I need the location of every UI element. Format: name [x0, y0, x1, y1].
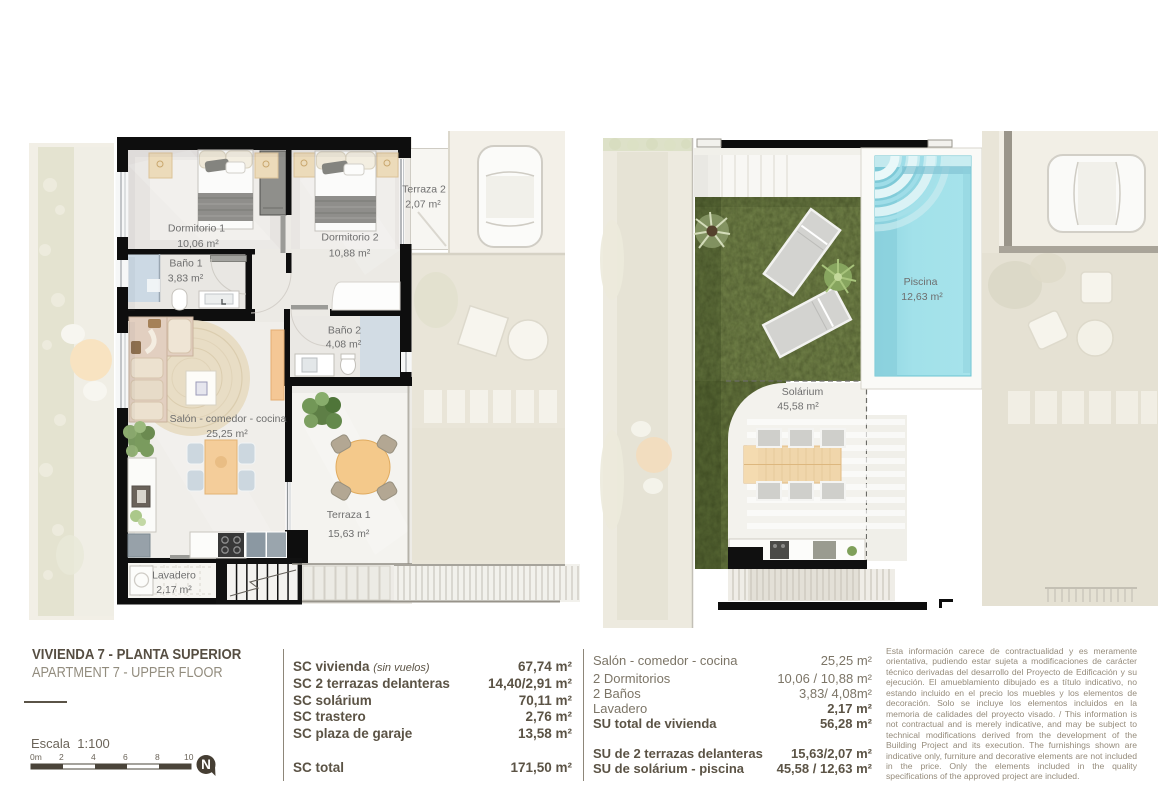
svg-text:8: 8: [155, 752, 160, 762]
svg-text:12,63 m²: 12,63 m²: [901, 291, 943, 303]
svg-text:3,83 m²: 3,83 m²: [168, 273, 204, 285]
svg-text:25,25 m²: 25,25 m²: [206, 428, 248, 440]
svg-text:Terraza 1: Terraza 1: [327, 509, 371, 521]
svg-text:Terraza 2: Terraza 2: [402, 183, 446, 195]
svg-text:2,07 m²: 2,07 m²: [405, 199, 441, 211]
svg-text:6: 6: [123, 752, 128, 762]
svg-text:45,58 m²: 45,58 m²: [777, 401, 819, 413]
svg-text:4,08 m²: 4,08 m²: [326, 339, 362, 351]
svg-text:Dormitorio 1: Dormitorio 1: [168, 223, 225, 235]
svg-text:15,63 m²: 15,63 m²: [328, 528, 370, 540]
svg-text:Baño 1: Baño 1: [169, 258, 202, 270]
svg-text:0m: 0m: [30, 752, 42, 762]
svg-text:10,88 m²: 10,88 m²: [329, 248, 371, 260]
svg-text:Dormitorio 2: Dormitorio 2: [321, 232, 378, 244]
svg-text:10,06 m²: 10,06 m²: [177, 238, 219, 250]
svg-text:2,17 m²: 2,17 m²: [156, 584, 192, 596]
svg-text:Lavadero: Lavadero: [152, 570, 196, 582]
svg-text:Solárium: Solárium: [782, 386, 824, 398]
svg-text:Baño 2: Baño 2: [328, 325, 361, 337]
svg-text:2: 2: [59, 752, 64, 762]
svg-text:Piscina: Piscina: [904, 276, 938, 288]
svg-text:Salón - comedor - cocina: Salón - comedor - cocina: [170, 413, 287, 425]
svg-text:4: 4: [91, 752, 96, 762]
svg-text:10: 10: [184, 752, 194, 762]
svg-text:N: N: [201, 757, 211, 772]
